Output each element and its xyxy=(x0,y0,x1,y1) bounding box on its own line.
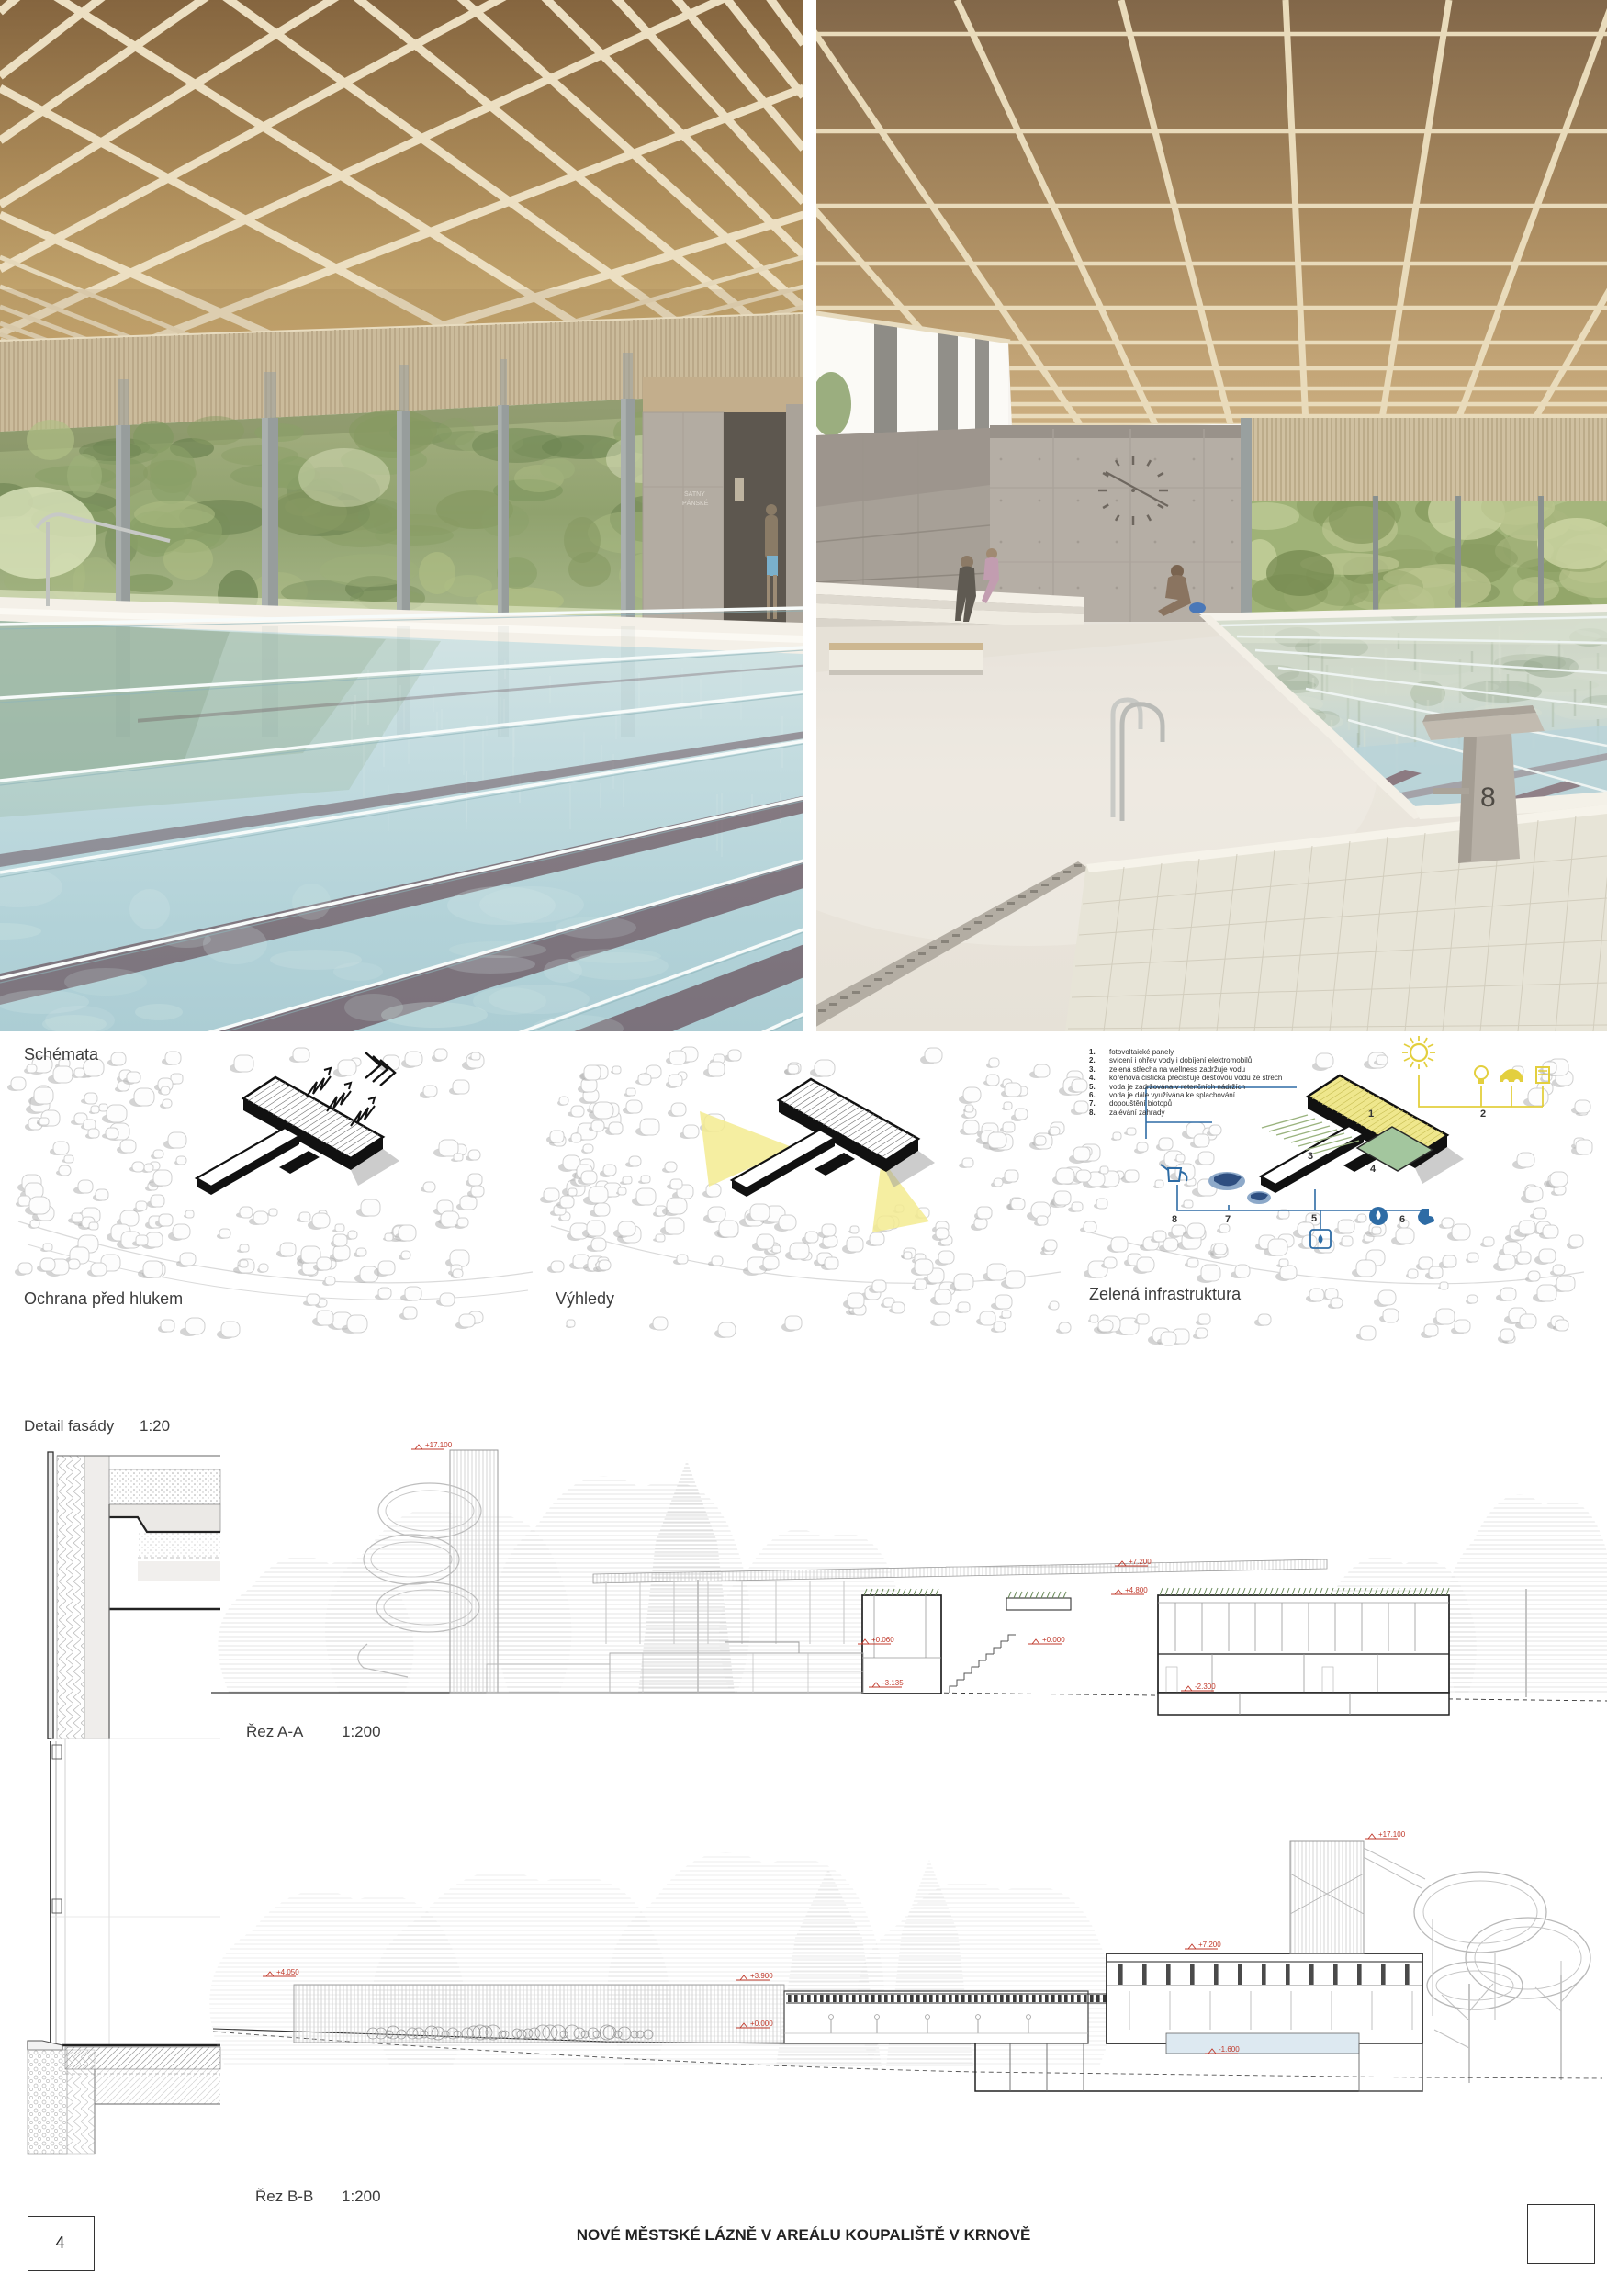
svg-text:+17.100: +17.100 xyxy=(1378,1830,1406,1839)
svg-text:+7.200: +7.200 xyxy=(1198,1941,1221,1949)
svg-text:+4.800: +4.800 xyxy=(1125,1586,1148,1594)
svg-text:+0.000: +0.000 xyxy=(750,2020,773,2028)
svg-text:-3.135: -3.135 xyxy=(882,1679,904,1687)
svg-text:6: 6 xyxy=(1399,1214,1405,1225)
svg-text:+7.200: +7.200 xyxy=(1129,1558,1152,1566)
svg-text:1: 1 xyxy=(1368,1109,1374,1120)
svg-text:+0.000: +0.000 xyxy=(1042,1636,1065,1644)
svg-text:+17.100: +17.100 xyxy=(425,1441,453,1449)
svg-text:+3.900: +3.900 xyxy=(750,1972,773,1980)
svg-text:+4.050: +4.050 xyxy=(276,1968,299,1976)
svg-text:3: 3 xyxy=(1308,1151,1313,1162)
svg-text:4: 4 xyxy=(1370,1164,1377,1175)
svg-text:PÁNSKÉ: PÁNSKÉ xyxy=(682,499,709,507)
svg-text:-1.600: -1.600 xyxy=(1219,2045,1240,2054)
svg-text:8: 8 xyxy=(1480,782,1496,813)
svg-text:8: 8 xyxy=(1172,1214,1177,1225)
svg-text:2: 2 xyxy=(1480,1109,1486,1120)
svg-text:5: 5 xyxy=(1311,1213,1317,1224)
svg-text:+0.060: +0.060 xyxy=(871,1636,894,1644)
svg-text:-2.300: -2.300 xyxy=(1195,1683,1216,1691)
svg-text:ŠATNY: ŠATNY xyxy=(684,490,705,498)
svg-text:7: 7 xyxy=(1225,1214,1231,1225)
